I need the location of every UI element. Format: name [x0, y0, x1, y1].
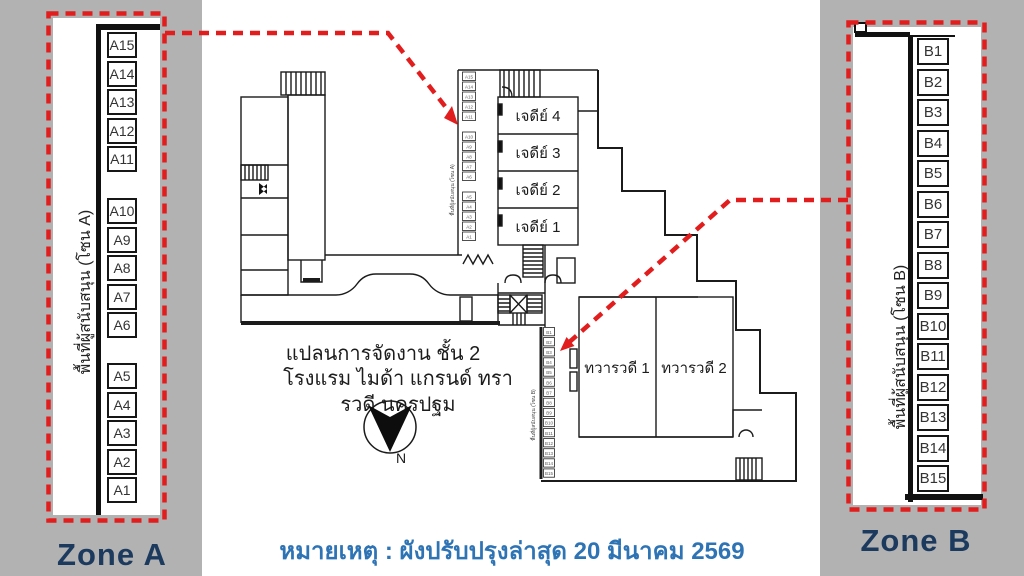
zone-b-top-wall: [855, 32, 910, 37]
door-arc-icon: [505, 275, 521, 283]
zone-b-panel: B1B2B3B4B5B6B7B8B9B10B11B12B13B14B15: [853, 27, 981, 505]
mini-booth-B7: [544, 388, 555, 396]
door-semicircle-icon: [739, 430, 753, 437]
booth-B14: B14: [917, 435, 949, 462]
mini-booth-A15: [463, 72, 476, 81]
room-labels: เจดีย์ 4 เจดีย์ 3 เจดีย์ 2 เจดีย์ 1 ทวาร…: [516, 108, 727, 377]
mini-booth-B14: [544, 459, 555, 467]
mini-zone-b-column: B1B2B3B4B5B6B7B8B9B10B11B12B13B14B15: [544, 328, 555, 478]
room-label: เจดีย์ 3: [516, 145, 561, 162]
mini-booth-B3: [544, 348, 555, 356]
wall-break-icon: [463, 255, 493, 264]
mini-booth-label: B12: [545, 441, 554, 446]
connector-zone-b: [566, 200, 848, 345]
mini-booth-label: A15: [465, 75, 474, 80]
mini-booth-A10: [463, 132, 476, 141]
zone-b-caption: Zone B: [846, 523, 986, 559]
zone-a-side-label: พื้นที่ผู้สนับสนุน (โซน A): [75, 182, 95, 402]
booth-A1: A1: [107, 477, 137, 503]
arrowhead-zone-a-icon: [444, 106, 458, 125]
plan-title-floor: แปลนการจัดงาน ชั้น 2: [283, 341, 483, 367]
mini-booth-label: A1: [466, 235, 472, 240]
booth-B2: B2: [917, 69, 949, 96]
stairs-top-icon: [281, 72, 325, 95]
floor-plan-walls: [241, 70, 796, 481]
zone-b-thin-wall: [913, 35, 955, 37]
mini-booth-label: B9: [546, 411, 552, 416]
booth-A5: A5: [107, 363, 137, 389]
zone-b-side-label: พื้นที่ผู้สนับสนุน (โซน B): [890, 237, 910, 457]
zone-b-bottom-wall: [905, 494, 983, 500]
mini-booth-label: B15: [545, 471, 554, 476]
mini-booth-B12: [544, 439, 555, 447]
booth-A8: A8: [107, 255, 137, 281]
revision-note: หมายเหตุ : ผังปรับปรุงล่าสุด 20 มีนาคม 2…: [262, 531, 762, 570]
mini-booth-A8: [463, 152, 476, 161]
booth-A14: A14: [107, 61, 137, 87]
booth-A6: A6: [107, 312, 137, 338]
booth-B13: B13: [917, 404, 949, 431]
booth-B11: B11: [917, 343, 949, 370]
booth-B4: B4: [917, 130, 949, 157]
booth-B9: B9: [917, 282, 949, 309]
mini-booth-B5: [544, 368, 555, 376]
compass-n-label: N: [396, 450, 406, 466]
booth-A7: A7: [107, 284, 137, 310]
mini-booth-label: B8: [546, 401, 552, 406]
booth-A12: A12: [107, 118, 137, 144]
mini-booth-label: B13: [545, 451, 554, 456]
booth-B1: B1: [917, 38, 949, 65]
booth-A10: A10: [107, 198, 137, 224]
mini-booth-B6: [544, 378, 555, 386]
mini-booth-B8: [544, 398, 555, 406]
mini-booth-A1: [463, 232, 476, 241]
booth-B8: B8: [917, 252, 949, 279]
booth-B7: B7: [917, 221, 949, 248]
mini-booth-label: B7: [546, 390, 552, 395]
room-label: เจดีย์ 4: [516, 108, 561, 125]
mini-booth-B9: [544, 408, 555, 416]
mini-booth-label: A4: [466, 205, 472, 210]
slide: A15A14A13A12A11A10A9A8A7A6A5A4A3A2A1 พื้…: [0, 0, 1024, 576]
room-label: ทวารวดี 1: [584, 360, 649, 377]
mini-booth-A14: [463, 82, 476, 91]
arrowhead-zone-b-icon: [560, 337, 575, 351]
mini-booth-label: A11: [465, 115, 473, 120]
stairs-bottom-icon: [736, 458, 762, 480]
mini-booth-A5: [463, 192, 476, 201]
booth-B10: B10: [917, 313, 949, 340]
mini-booth-label: B10: [545, 421, 554, 426]
booth-B12: B12: [917, 374, 949, 401]
mini-zone-a-label: พื้นที่ผู้สนับสนุน (โซน A): [447, 164, 456, 216]
mini-booth-label: A9: [466, 145, 472, 150]
mini-booth-label: A7: [466, 165, 472, 170]
mini-booth-B11: [544, 429, 555, 437]
mini-booth-B15: [544, 469, 555, 477]
stairs-mid-icon: [523, 245, 543, 277]
mini-booth-B10: [544, 418, 555, 426]
stairs-topright-icon: [500, 70, 540, 97]
zone-a-panel: A15A14A13A12A11A10A9A8A7A6A5A4A3A2A1: [53, 18, 160, 515]
plan-title-hotel: โรงแรม ไมด้า แกรนด์ ทรารวดี นครปฐม: [268, 366, 528, 418]
mini-booth-label: B11: [545, 431, 553, 436]
mini-booth-A11: [463, 112, 476, 121]
mini-zone-a-column: A15A14A13A12A11A10A9A8A7A6A5A4A3A2A1: [463, 72, 476, 241]
mini-booth-A6: [463, 172, 476, 181]
mini-booth-label: A12: [465, 105, 474, 110]
mini-booth-A12: [463, 102, 476, 111]
mini-booth-B1: [544, 328, 555, 336]
mini-booth-A4: [463, 202, 476, 211]
mini-booth-label: A6: [466, 175, 472, 180]
door-icon: [259, 183, 267, 195]
booth-B3: B3: [917, 99, 949, 126]
mini-booth-label: A8: [466, 155, 472, 160]
mini-booth-label: A10: [465, 135, 474, 140]
mini-booth-B2: [544, 338, 555, 346]
booth-A13: A13: [107, 89, 137, 115]
mini-booth-label: B6: [546, 380, 552, 385]
mini-booth-label: B14: [545, 461, 554, 466]
mini-booth-label: B2: [546, 340, 552, 345]
room-label: เจดีย์ 1: [516, 219, 561, 236]
booth-A11: A11: [107, 146, 137, 172]
mini-booth-label: A2: [466, 225, 472, 230]
connector-zone-a: [165, 33, 451, 114]
mini-booth-A2: [463, 222, 476, 231]
mini-booth-label: A13: [465, 95, 474, 100]
elevator-icon: [510, 295, 527, 313]
mini-booth-A3: [463, 212, 476, 221]
booth-B15: B15: [917, 465, 949, 492]
room-label: ทวารวดี 2: [661, 360, 726, 377]
mini-booth-label: B4: [546, 360, 552, 365]
mini-booth-B4: [544, 358, 555, 366]
mini-booth-A7: [463, 162, 476, 171]
mini-booth-B13: [544, 449, 555, 457]
booth-A3: A3: [107, 420, 137, 446]
room-label: เจดีย์ 2: [516, 182, 561, 199]
mini-booth-label: A3: [466, 215, 472, 220]
mini-booth-label: A14: [465, 85, 474, 90]
mini-booth-label: B3: [546, 350, 552, 355]
zone-a-top-wall: [96, 24, 160, 30]
booth-A15: A15: [107, 32, 137, 58]
mini-booth-A9: [463, 142, 476, 151]
door-arc-icon: [545, 275, 561, 283]
booth-A2: A2: [107, 449, 137, 475]
booth-B5: B5: [917, 160, 949, 187]
booth-B6: B6: [917, 191, 949, 218]
mini-booth-label: A5: [466, 195, 472, 200]
mini-zone-b-label: พื้นที่ผู้สนับสนุน (โซน B): [528, 389, 537, 441]
booth-A9: A9: [107, 227, 137, 253]
booth-A4: A4: [107, 392, 137, 418]
stairs-left-icon: [241, 165, 268, 180]
mini-booth-label: B5: [546, 370, 552, 375]
mini-booth-label: B1: [546, 330, 552, 335]
mini-booth-A13: [463, 92, 476, 101]
zone-a-caption: Zone A: [42, 537, 182, 573]
